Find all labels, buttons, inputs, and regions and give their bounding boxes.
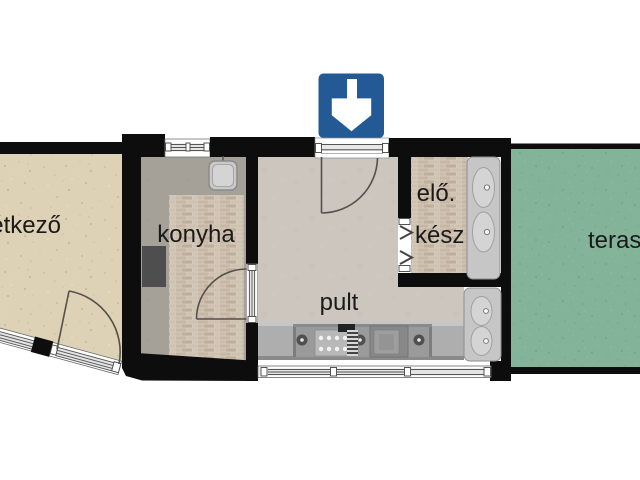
svg-text:konyha: konyha	[157, 221, 235, 248]
svg-text:étkező: étkező	[0, 212, 61, 239]
svg-text:kész.: kész.	[415, 222, 471, 249]
svg-text:pult: pult	[320, 289, 359, 316]
svg-text:terasz: terasz	[588, 227, 640, 254]
svg-text:elő.: elő.	[417, 180, 456, 207]
